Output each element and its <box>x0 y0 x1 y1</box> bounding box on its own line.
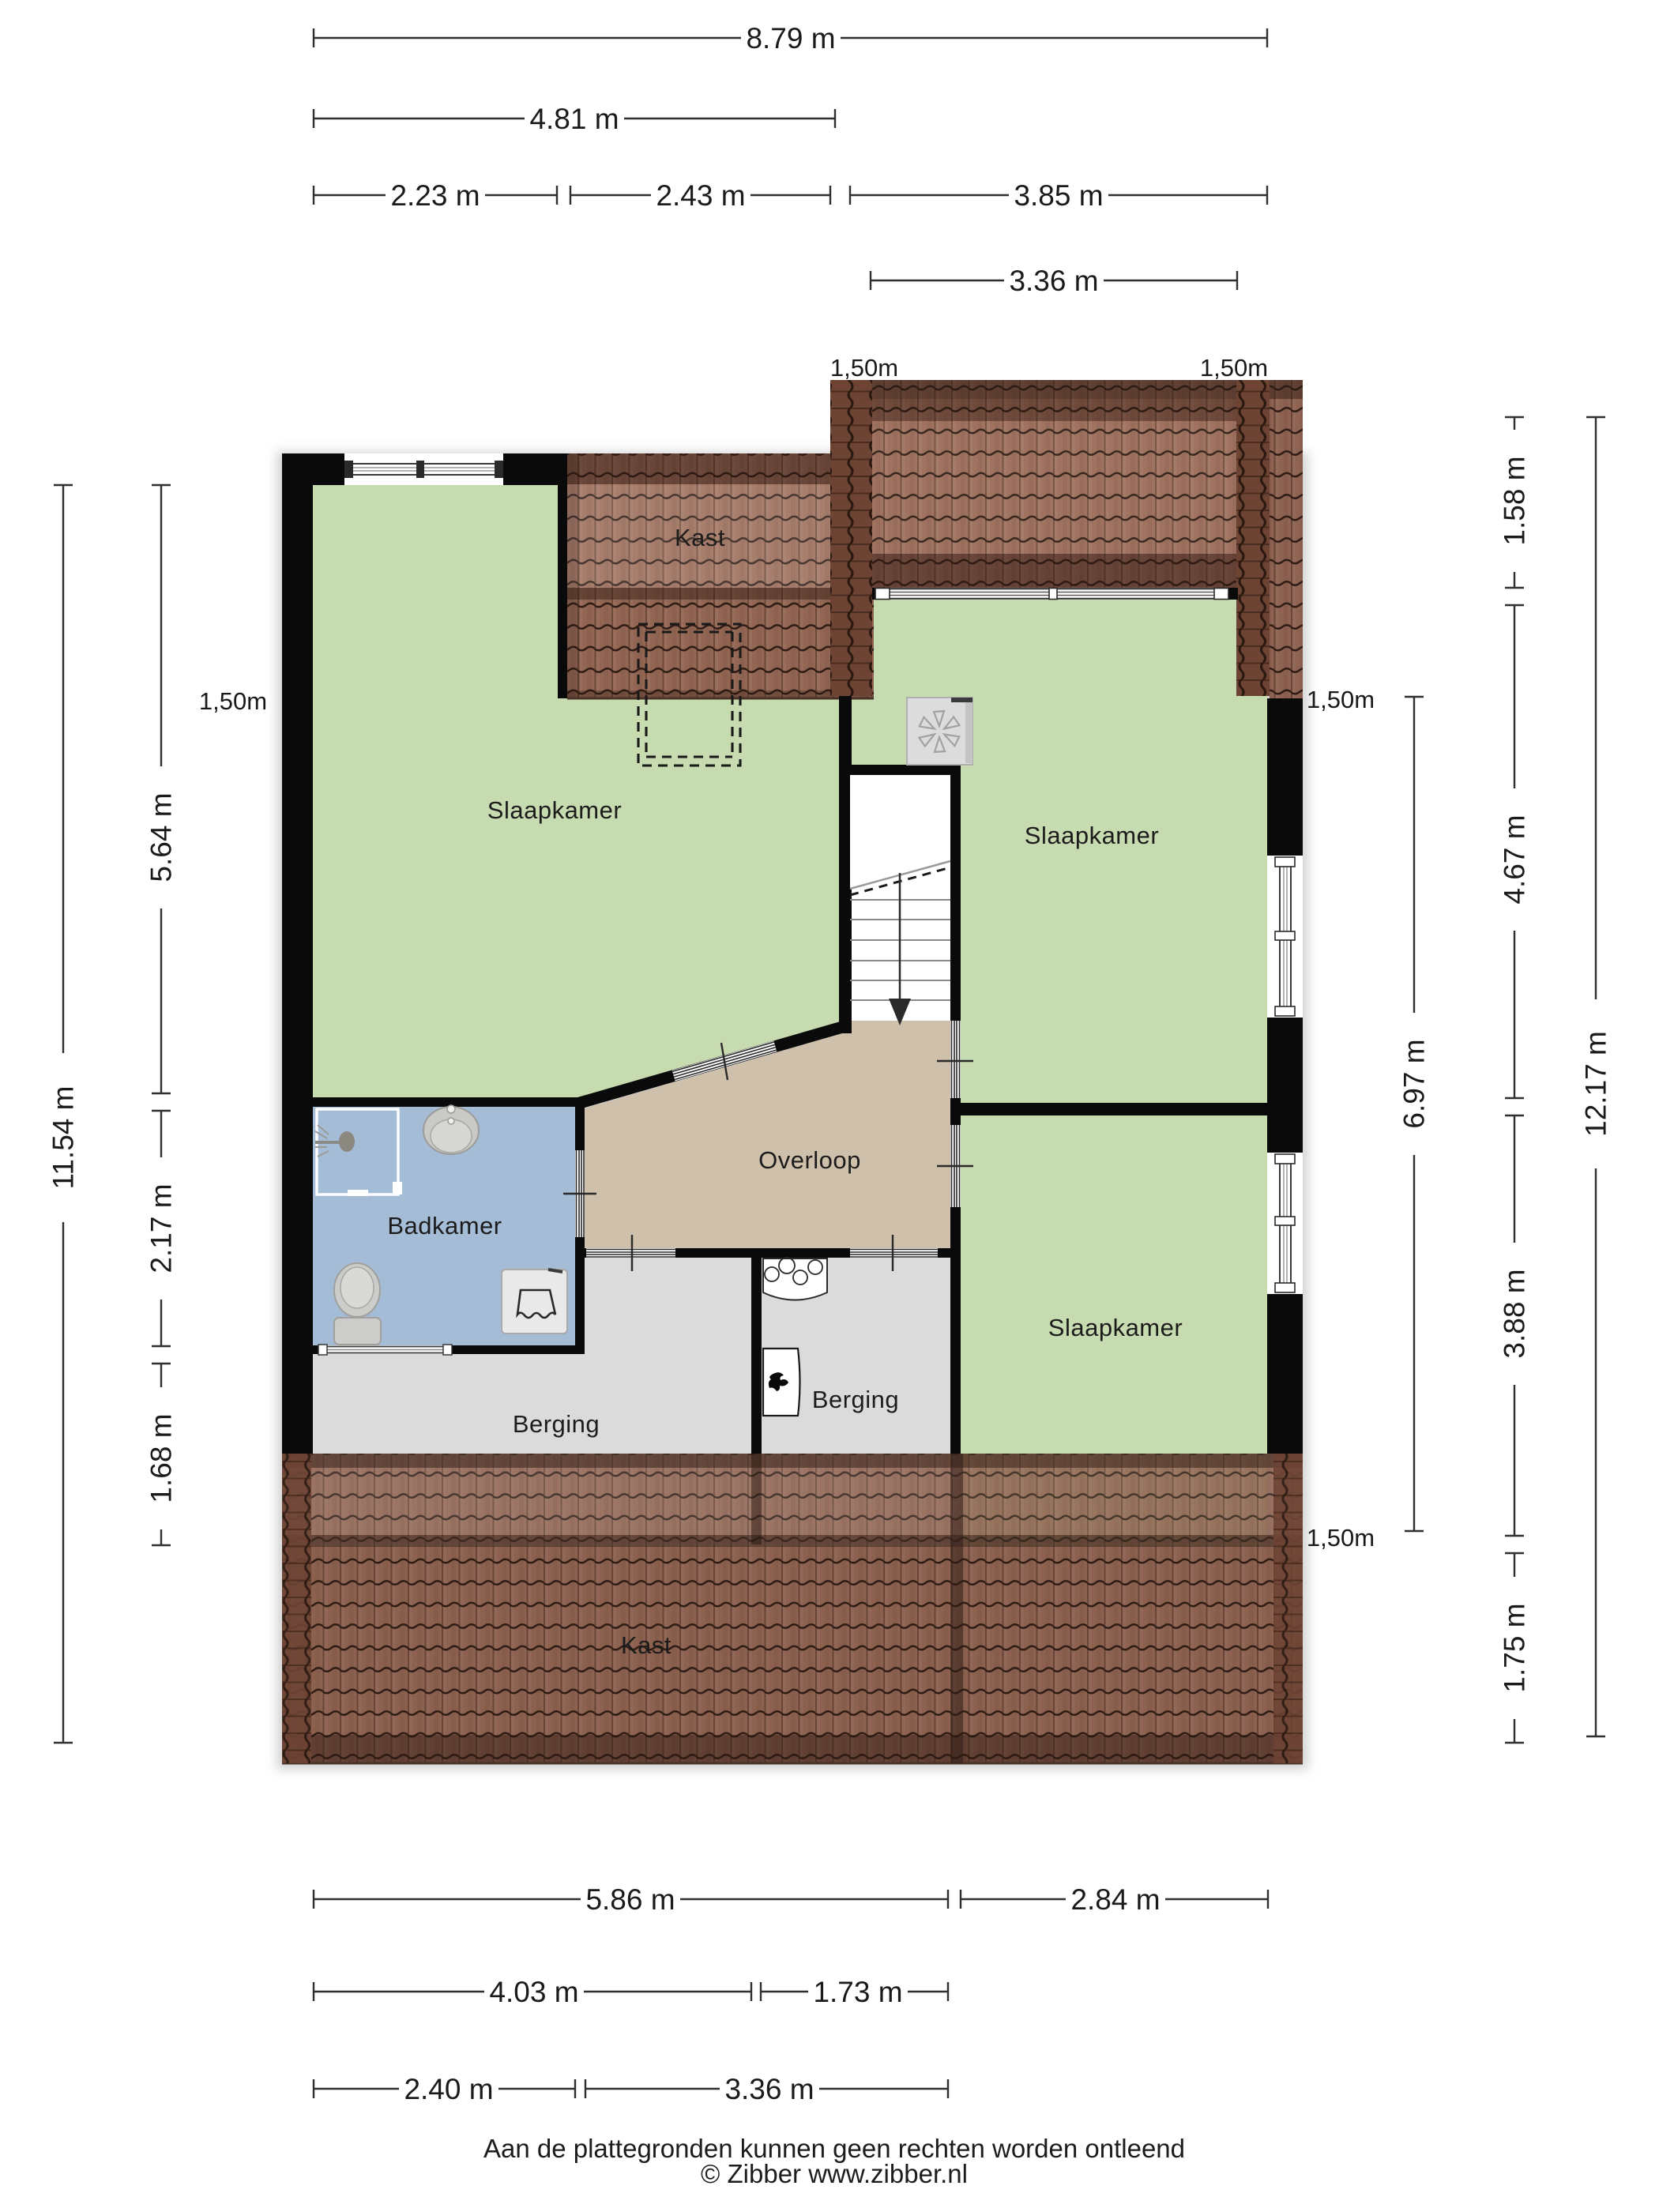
svg-text:© Zibber www.zibber.nl: © Zibber www.zibber.nl <box>701 2159 968 2188</box>
svg-text:12.17 m: 12.17 m <box>1580 1031 1612 1137</box>
svg-text:3.36 m: 3.36 m <box>724 2073 814 2105</box>
svg-text:4.81 m: 4.81 m <box>529 103 619 135</box>
svg-text:6.97 m: 6.97 m <box>1398 1039 1431 1128</box>
svg-text:1.58 m: 1.58 m <box>1499 456 1531 545</box>
svg-text:5.64 m: 5.64 m <box>145 792 178 882</box>
svg-text:Overloop: Overloop <box>758 1146 861 1174</box>
svg-text:5.86 m: 5.86 m <box>585 1883 675 1916</box>
svg-text:1,50m: 1,50m <box>199 687 267 715</box>
svg-text:1,50m: 1,50m <box>1307 686 1375 713</box>
svg-text:8.79 m: 8.79 m <box>746 22 835 55</box>
svg-text:3.88 m: 3.88 m <box>1499 1269 1531 1358</box>
svg-text:2.84 m: 2.84 m <box>1070 1883 1160 1916</box>
svg-text:Berging: Berging <box>812 1386 899 1413</box>
svg-text:4.03 m: 4.03 m <box>489 1976 578 2008</box>
svg-text:1.73 m: 1.73 m <box>813 1976 902 2008</box>
svg-text:Kast: Kast <box>675 524 725 551</box>
svg-text:4.67 m: 4.67 m <box>1499 814 1531 904</box>
svg-text:Berging: Berging <box>513 1410 600 1438</box>
svg-text:2.17 m: 2.17 m <box>145 1183 178 1273</box>
svg-text:2.23 m: 2.23 m <box>390 179 480 212</box>
svg-text:2.43 m: 2.43 m <box>656 179 745 212</box>
svg-text:Slaapkamer: Slaapkamer <box>487 796 622 824</box>
svg-text:3.36 m: 3.36 m <box>1009 265 1098 297</box>
svg-text:1,50m: 1,50m <box>1307 1524 1375 1552</box>
svg-text:1.75 m: 1.75 m <box>1499 1603 1531 1692</box>
svg-text:11.54 m: 11.54 m <box>47 1086 80 1190</box>
svg-text:3.85 m: 3.85 m <box>1014 179 1103 212</box>
svg-text:2.40 m: 2.40 m <box>404 2073 493 2105</box>
svg-text:Slaapkamer: Slaapkamer <box>1025 822 1159 849</box>
svg-text:1,50m: 1,50m <box>1200 354 1268 382</box>
svg-text:1.68 m: 1.68 m <box>145 1413 178 1503</box>
svg-text:Kast: Kast <box>621 1631 671 1659</box>
svg-text:1,50m: 1,50m <box>830 354 898 382</box>
svg-text:Badkamer: Badkamer <box>387 1212 502 1240</box>
svg-text:Slaapkamer: Slaapkamer <box>1048 1314 1183 1341</box>
